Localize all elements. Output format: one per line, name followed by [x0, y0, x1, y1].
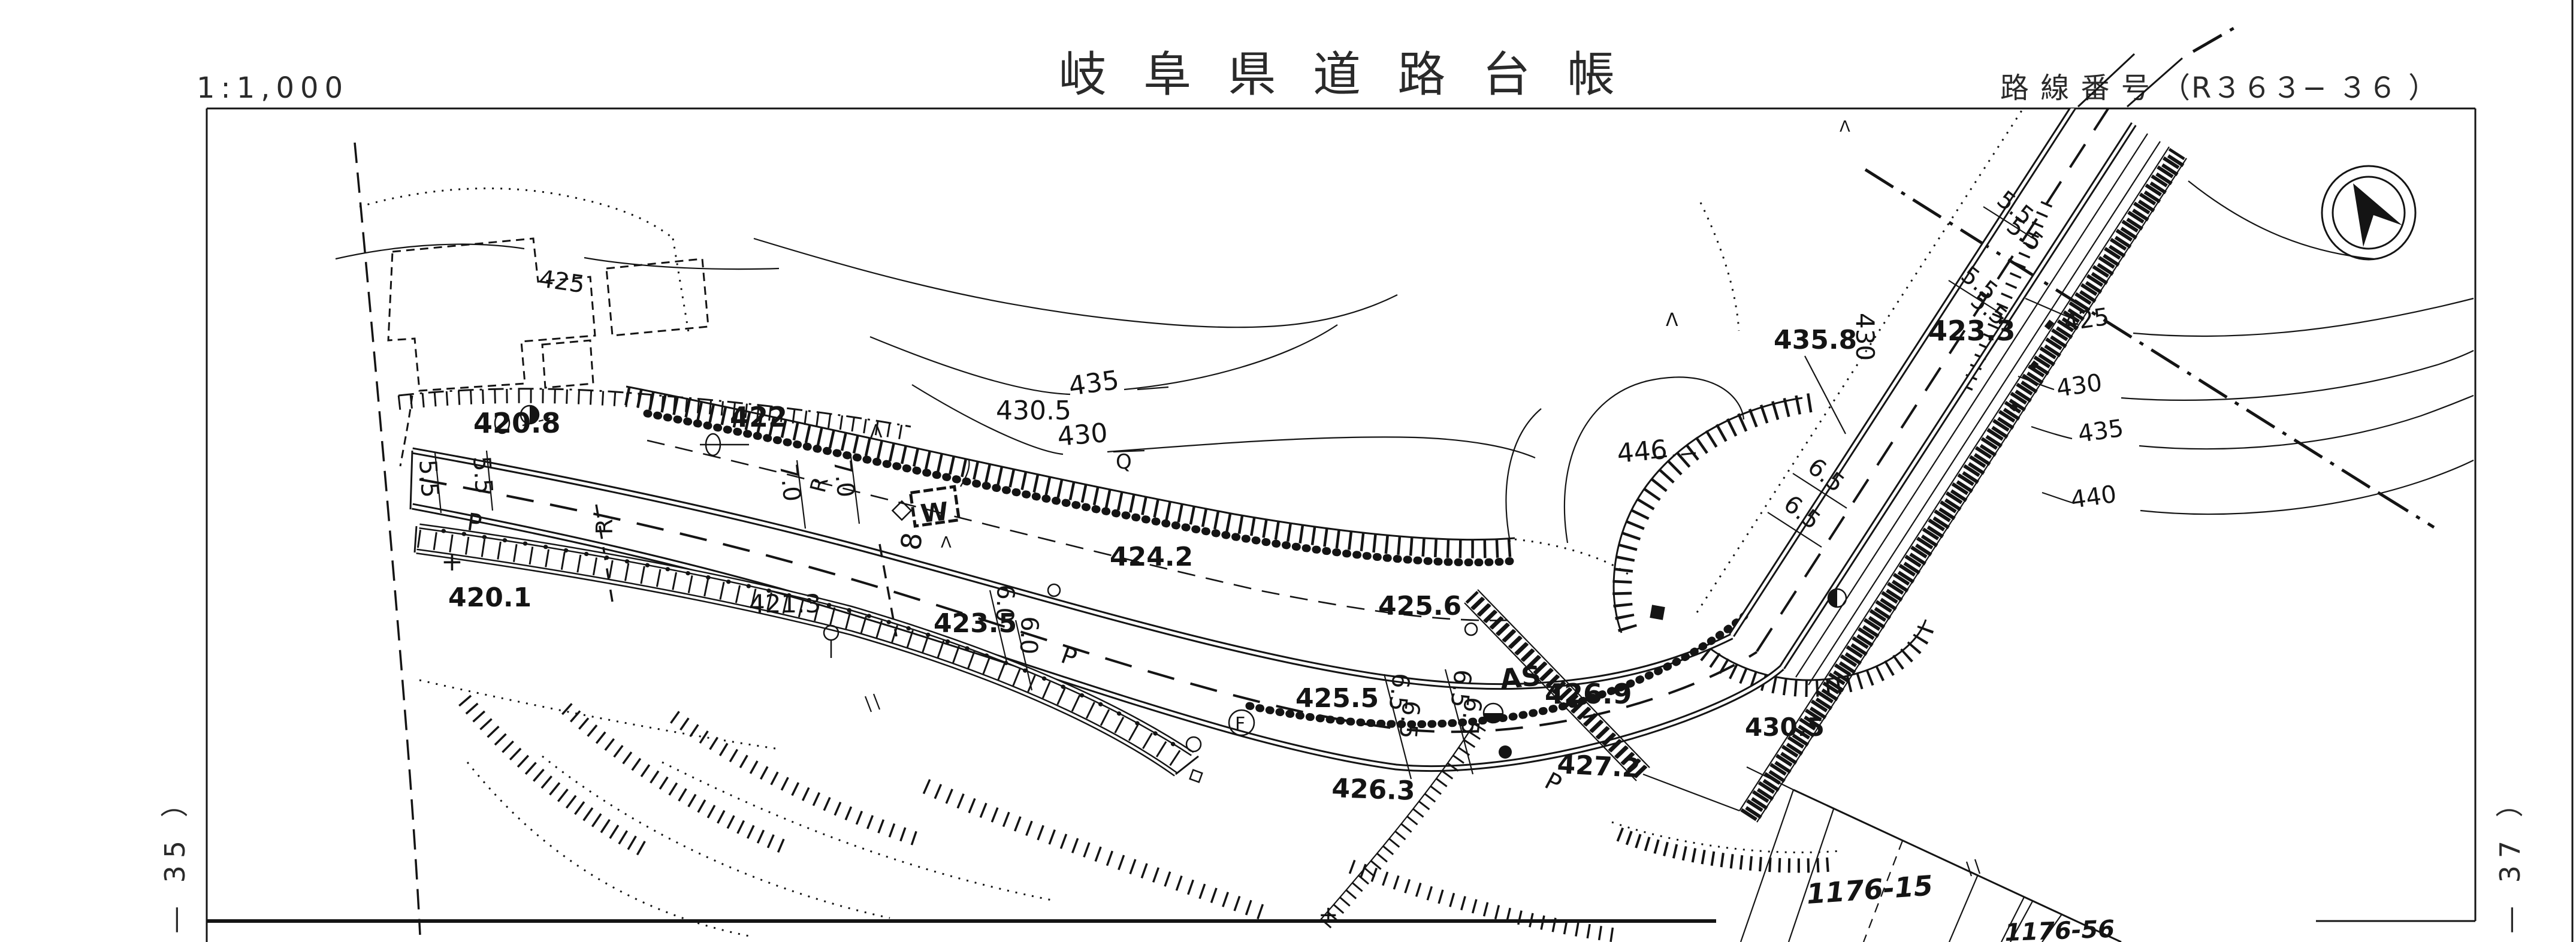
map-label: 1176-56: [2004, 916, 2115, 942]
map-label: P: [1540, 767, 1566, 798]
map-label: 6.5: [1393, 699, 1424, 740]
map-label: 6.5: [1455, 696, 1486, 736]
page-title: 岐 阜 県 道 路 台 帳: [1059, 47, 1626, 102]
map-label: 425: [537, 265, 587, 298]
map-label: 425: [2062, 303, 2111, 337]
road-register-sheet: 1:1,000 岐 阜 県 道 路 台 帳 路 線 番 号 （R３６３− ３６ …: [0, 0, 2576, 942]
map-label: 426.3: [1331, 773, 1416, 807]
route-number: 路 線 番 号 （R３６３− ３６ ）: [2000, 71, 2438, 105]
boundary-line-left: [355, 143, 420, 935]
map-label: 8: [894, 530, 929, 552]
map-label: 430.5: [1745, 712, 1825, 742]
map-label: 426.9: [1545, 678, 1632, 710]
parcel-boundaries: [1741, 767, 2121, 942]
map-label: 422: [730, 401, 787, 433]
map-label: Λ: [941, 534, 952, 552]
map-label: Q: [1116, 450, 1132, 474]
map-label: 430: [2055, 369, 2104, 403]
contour-lines: [336, 181, 2474, 543]
map-label: 420.1: [448, 582, 531, 613]
map-label: 1176-15: [1805, 869, 1934, 910]
map-label: +: [441, 547, 463, 577]
map-label: F: [1235, 714, 1245, 735]
map-label: 435.8: [1774, 325, 1857, 355]
map-label: 424.2: [1110, 542, 1193, 572]
map-label: 430: [1056, 418, 1109, 452]
adjacent-sheet-right: — 37 ）: [2494, 783, 2526, 934]
map-label: 430: [1850, 313, 1880, 361]
map-label: Λ: [1666, 310, 1678, 331]
map-label: 425.5: [1295, 683, 1379, 714]
map-label: +: [1318, 901, 1339, 929]
map-label: 446: [1616, 434, 1669, 469]
map-label: AS: [1499, 659, 1543, 696]
map-label: R: [591, 519, 618, 535]
map-label: 435: [2076, 415, 2125, 448]
north-arrow: [2322, 166, 2415, 259]
map-label: 7.0: [828, 458, 859, 499]
map-label: 420.8: [473, 407, 561, 439]
map-label: 435: [1067, 365, 1121, 402]
map-label: 421.3: [749, 589, 821, 618]
map-label: 6.0: [990, 584, 1019, 623]
map-label: 427.2: [1556, 749, 1641, 784]
map-label: 425.6: [1378, 591, 1461, 621]
map-label: 5.5: [467, 455, 497, 495]
map-label: Λ: [1840, 118, 1850, 136]
map-label: P: [1058, 641, 1080, 672]
map-label: 7.0: [774, 462, 805, 503]
map-label: 440: [2069, 481, 2118, 514]
branch-road-northeast: [1697, 69, 2187, 822]
map-label: 5.5: [413, 458, 443, 499]
map-label: 6.0: [1014, 616, 1043, 655]
map-label: R: [806, 475, 833, 495]
header: 1:1,000 岐 阜 県 道 路 台 帳 路 線 番 号 （R３６３− ３６ …: [197, 47, 2438, 105]
adjacent-sheet-left: — 35 ）: [159, 783, 191, 934]
map-scale: 1:1,000: [197, 71, 349, 105]
map-canvas: 1:1,000 岐 阜 県 道 路 台 帳 路 線 番 号 （R３６３− ３６ …: [0, 0, 2576, 942]
survey-symbols: [495, 319, 2054, 876]
map-label: W: [919, 496, 950, 529]
map-content: 425420.8422435430.5430Q424.2423.5425.6AS…: [336, 69, 2474, 942]
map-label: Λ: [870, 421, 883, 442]
